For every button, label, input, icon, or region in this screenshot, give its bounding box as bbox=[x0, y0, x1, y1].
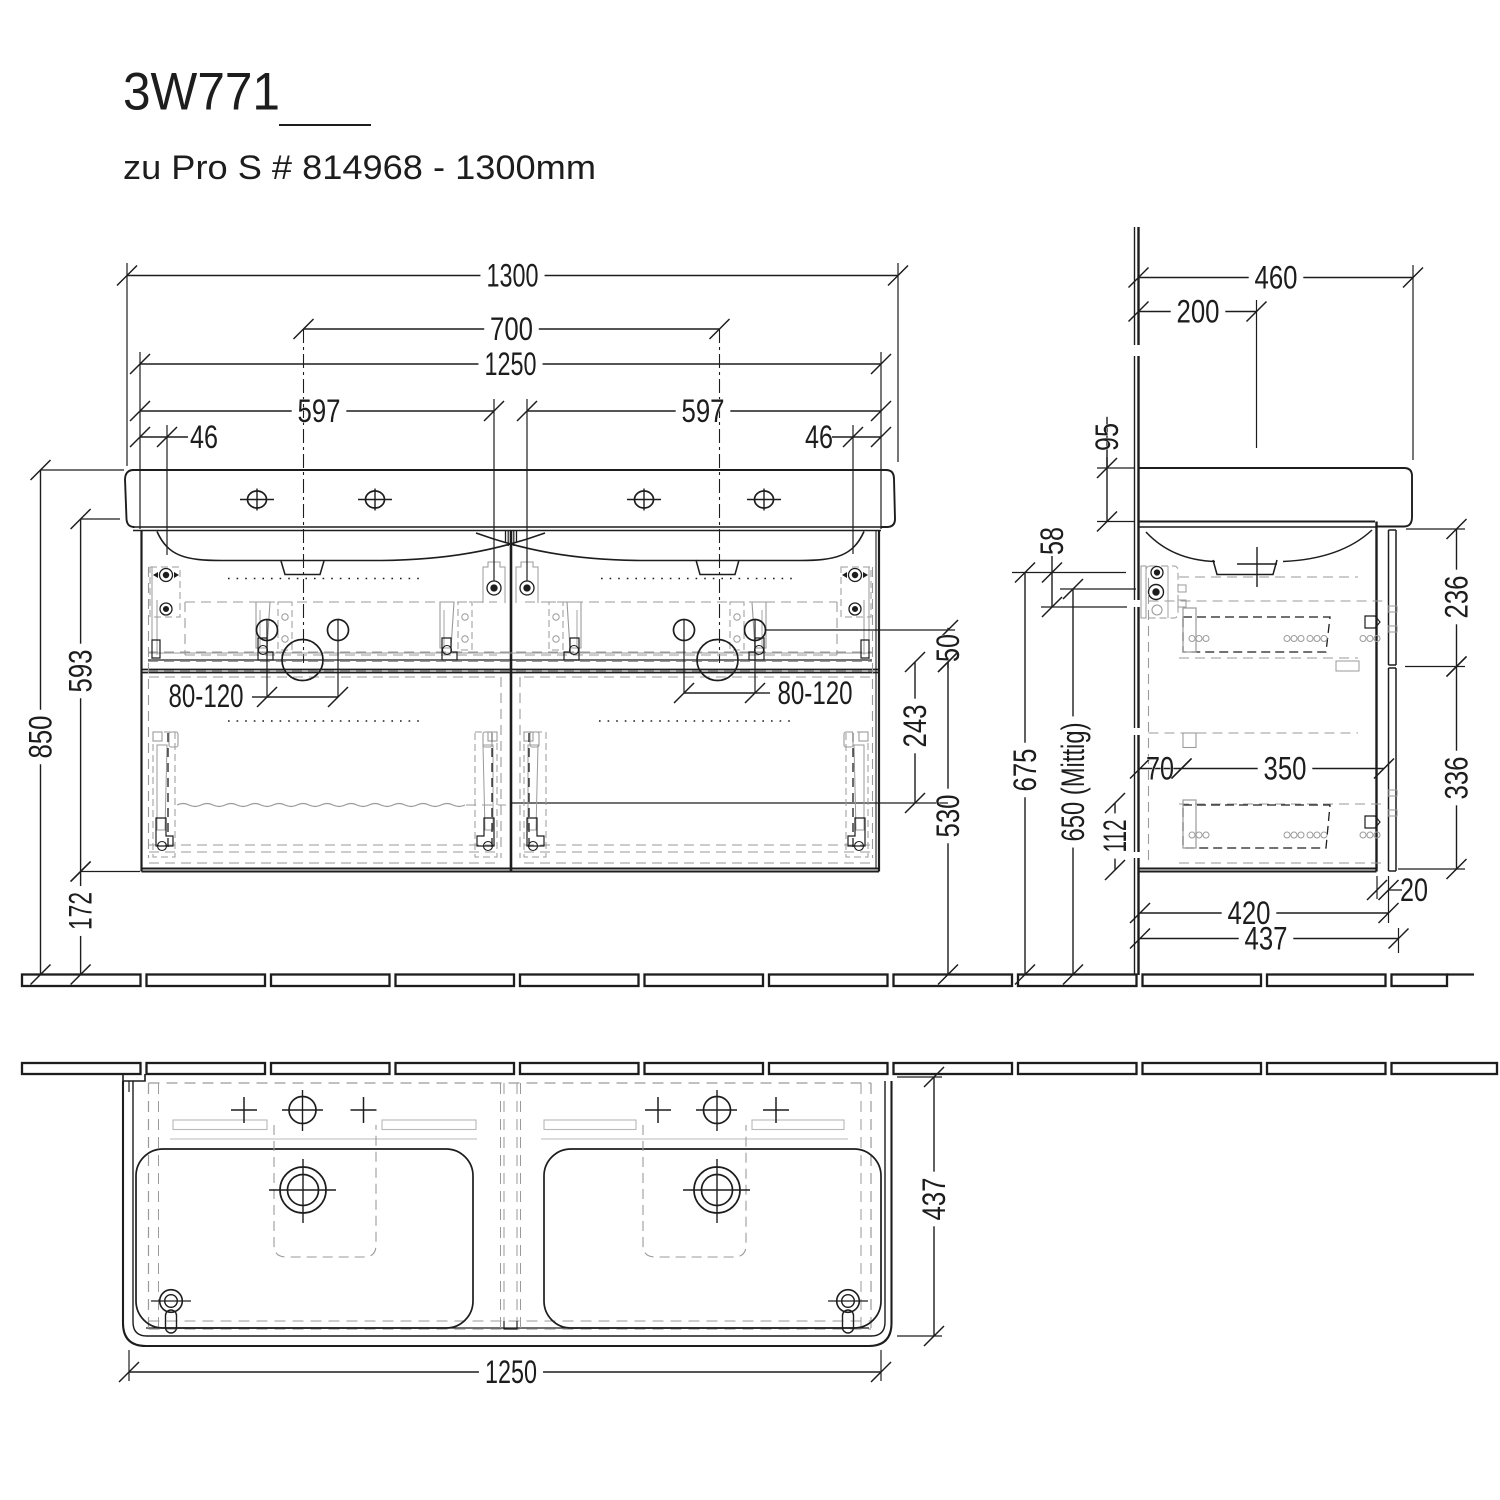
svg-text:437: 437 bbox=[916, 1178, 952, 1221]
svg-text:437: 437 bbox=[1245, 921, 1288, 957]
svg-text:1250: 1250 bbox=[485, 1354, 537, 1390]
svg-text:700: 700 bbox=[490, 311, 533, 347]
svg-text:850: 850 bbox=[23, 716, 59, 759]
svg-text:650 (Mittig): 650 (Mittig) bbox=[1055, 723, 1091, 842]
svg-text:1250: 1250 bbox=[485, 346, 537, 382]
svg-text:460: 460 bbox=[1255, 260, 1298, 296]
svg-text:597: 597 bbox=[298, 393, 341, 429]
svg-text:20: 20 bbox=[1400, 872, 1428, 908]
svg-text:1300: 1300 bbox=[487, 258, 539, 294]
svg-text:675: 675 bbox=[1007, 749, 1043, 792]
svg-text:46: 46 bbox=[190, 419, 218, 455]
svg-text:336: 336 bbox=[1439, 757, 1475, 800]
svg-text:112: 112 bbox=[1097, 820, 1133, 853]
svg-text:50: 50 bbox=[930, 634, 966, 662]
svg-text:80-120: 80-120 bbox=[778, 675, 853, 711]
svg-text:46: 46 bbox=[805, 419, 833, 455]
svg-text:58: 58 bbox=[1034, 527, 1070, 555]
svg-text:3W771: 3W771 bbox=[123, 63, 280, 122]
svg-text:172: 172 bbox=[63, 892, 99, 930]
svg-text:95: 95 bbox=[1089, 423, 1125, 451]
svg-text:236: 236 bbox=[1439, 576, 1475, 619]
svg-text:zu Pro S # 814968 - 1300mm: zu Pro S # 814968 - 1300mm bbox=[123, 149, 596, 187]
svg-text:530: 530 bbox=[930, 795, 966, 838]
svg-text:70: 70 bbox=[1146, 751, 1174, 787]
svg-text:243: 243 bbox=[897, 705, 933, 748]
svg-text:593: 593 bbox=[63, 650, 99, 693]
svg-text:597: 597 bbox=[682, 393, 725, 429]
svg-text:350: 350 bbox=[1264, 751, 1307, 787]
svg-text:200: 200 bbox=[1177, 294, 1220, 330]
svg-text:80-120: 80-120 bbox=[169, 678, 244, 714]
